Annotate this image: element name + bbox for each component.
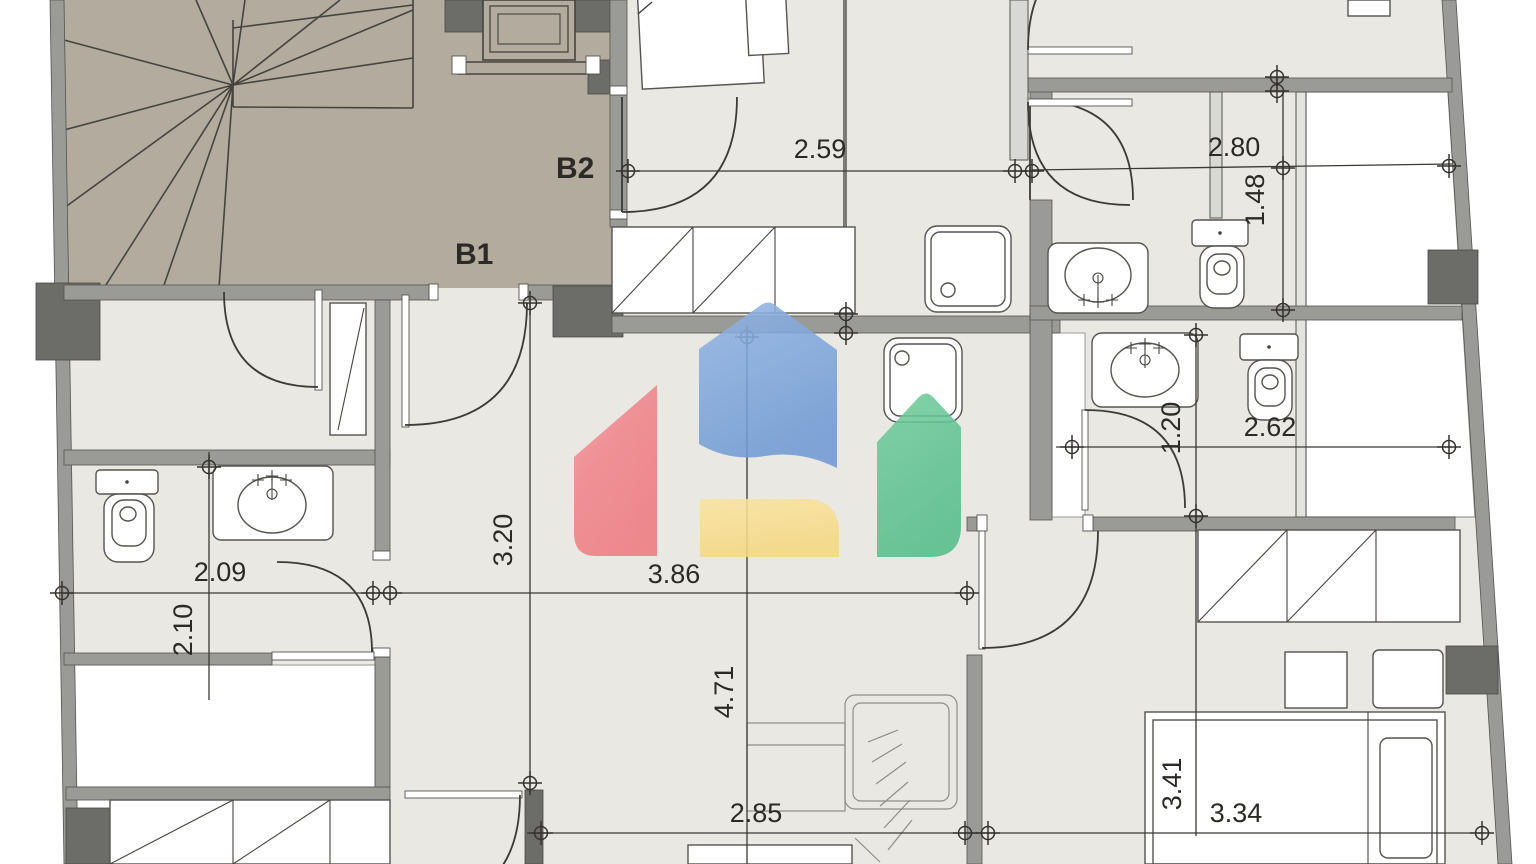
- mirror-panel: [330, 303, 366, 435]
- toilet-left: [96, 470, 158, 562]
- window-band-right: [1296, 92, 1306, 517]
- dim-living-width: 3.86: [648, 559, 701, 589]
- elevator-car: [483, 0, 575, 60]
- closet-bottom-left: [110, 800, 390, 864]
- shower-top: [925, 226, 1011, 312]
- dim-top-center-width: 2.59: [794, 134, 847, 164]
- dim-top-right-width: 2.80: [1208, 132, 1261, 162]
- dim-hallway-depth: 3.20: [488, 514, 518, 567]
- closet-right: [1198, 530, 1460, 622]
- wardrobe-top: [612, 227, 855, 313]
- dim-right-bedroom-depth: 3.41: [1157, 758, 1187, 811]
- lobby-mid-right: [1052, 333, 1085, 517]
- unit-label-b2: B2: [556, 152, 594, 185]
- dim-top-right-depth: 1.48: [1240, 174, 1270, 227]
- sink-left: [213, 466, 333, 540]
- logo-yellow-base: [700, 499, 839, 557]
- unit-label-b1: B1: [455, 238, 493, 271]
- sink-mid-right: [1092, 333, 1198, 407]
- bed-bottom-center: [688, 845, 852, 864]
- floor-plan-drawing: 2.59 2.80 1.48 3.20 3.86 2.09 2.10 4.71 …: [0, 0, 1536, 864]
- sink-top-right: [1048, 243, 1148, 313]
- dim-living-depth: 4.71: [709, 666, 739, 719]
- toilet-mid-right: [1240, 334, 1298, 420]
- toilet-top-right: [1192, 220, 1248, 308]
- dim-right-bath-width: 2.62: [1244, 412, 1297, 442]
- dim-center-bedroom-width: 2.85: [730, 798, 783, 828]
- dim-right-bedroom-width: 3.34: [1210, 798, 1263, 828]
- floor-plan: 2.59 2.80 1.48 3.20 3.86 2.09 2.10 4.71 …: [0, 0, 1536, 864]
- dim-right-bath-depth: 1.20: [1156, 402, 1186, 455]
- nightstand: [1373, 650, 1443, 708]
- dim-left-bath-width: 2.09: [194, 557, 247, 587]
- room-bottom-left: [66, 665, 375, 787]
- dim-left-bath-depth: 2.10: [168, 604, 198, 657]
